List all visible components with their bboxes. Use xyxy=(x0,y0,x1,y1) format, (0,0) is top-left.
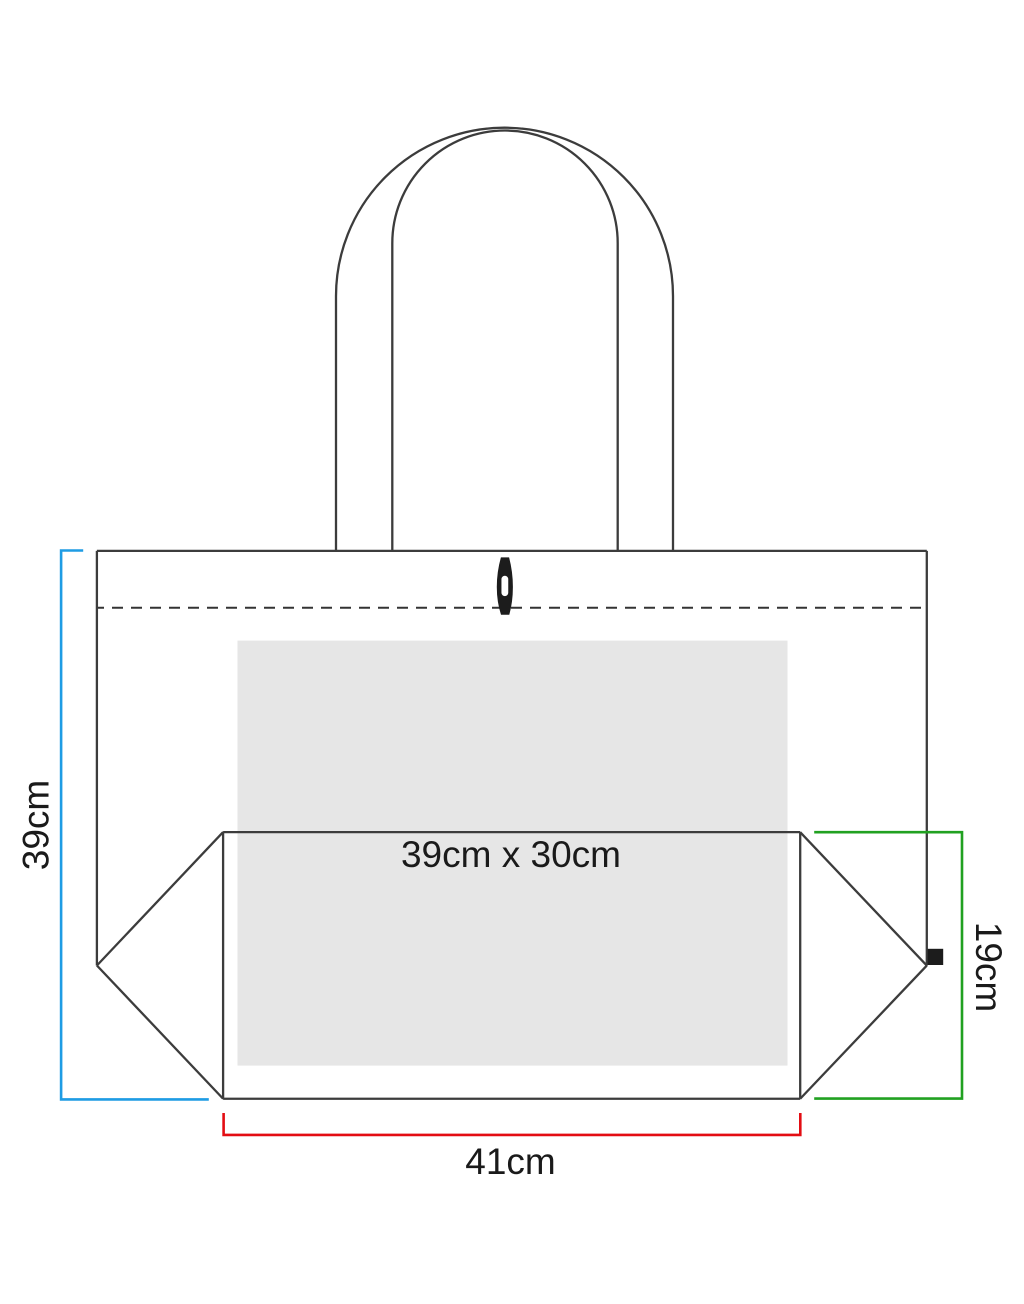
svg-text:19cm: 19cm xyxy=(968,922,1009,1012)
svg-text:41cm: 41cm xyxy=(465,1141,555,1182)
svg-text:39cm x 30cm: 39cm x 30cm xyxy=(401,834,621,875)
svg-text:39cm: 39cm xyxy=(16,780,57,870)
